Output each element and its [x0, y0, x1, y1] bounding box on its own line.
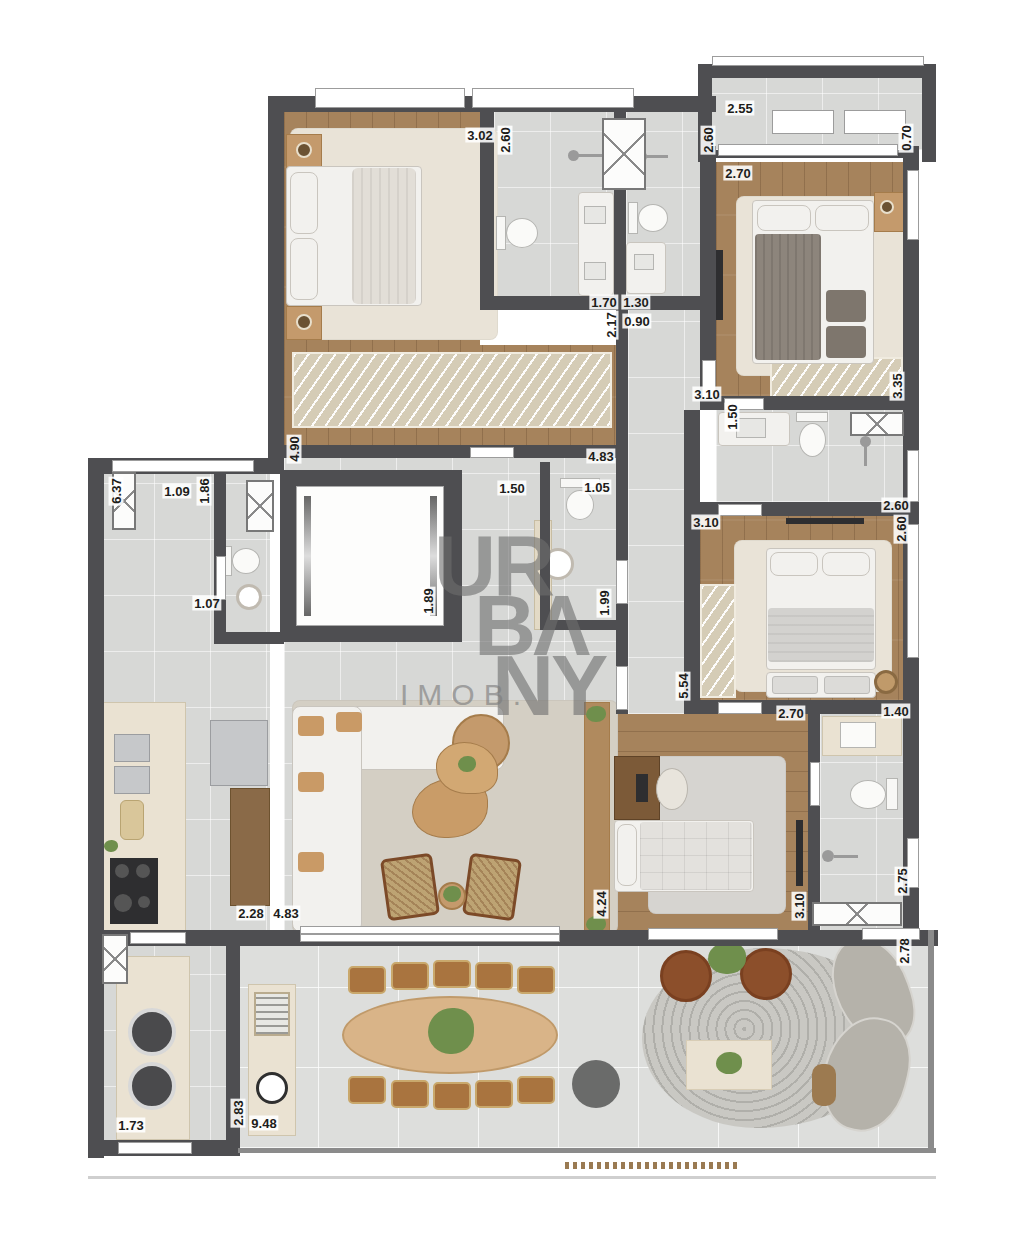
dimension-label: 4.83: [586, 449, 615, 464]
dimension-label: 1.40: [881, 704, 910, 719]
dimension-label: 3.10: [691, 515, 720, 530]
dimension-label: 6.37: [109, 476, 124, 505]
dimension-label: 5.54: [676, 671, 691, 700]
dimension-label: 2.60: [894, 514, 909, 543]
dimension-label: 2.60: [498, 125, 513, 154]
dimension-label: 3.10: [792, 891, 807, 920]
dimension-label: 4.90: [287, 434, 302, 463]
watermark-imob: IMOB.: [400, 678, 530, 712]
dimension-label: 1.89: [421, 586, 436, 615]
dimension-label: 4.24: [594, 889, 609, 918]
dimension-label: 2.55: [725, 101, 754, 116]
dimension-label: 1.05: [582, 480, 611, 495]
dimension-label: 2.60: [881, 498, 910, 513]
dimension-label: 1.86: [197, 476, 212, 505]
dimension-label: 1.99: [597, 588, 612, 617]
dimension-label: 1.50: [497, 481, 526, 496]
dimension-label: 1.50: [725, 402, 740, 431]
floor-plan: UR BΛ NY IMOB. 3.022.602.602.550.702.701…: [0, 0, 1024, 1248]
dimension-label: 2.17: [604, 310, 619, 339]
dimension-label: 2.75: [895, 866, 910, 895]
dimension-label: 1.30: [621, 295, 650, 310]
dimension-label: 3.02: [465, 128, 494, 143]
dimension-label: 4.83: [271, 906, 300, 921]
dimension-label: 3.35: [890, 371, 905, 400]
dimension-label: 2.28: [236, 906, 265, 921]
dimension-label: 2.83: [231, 1098, 246, 1127]
dimension-label: 1.70: [589, 295, 618, 310]
dimension-label: 2.78: [897, 936, 912, 965]
dimension-label: 9.48: [249, 1116, 278, 1131]
dimension-label: 1.07: [192, 596, 221, 611]
dimension-label: 2.70: [776, 706, 805, 721]
dimension-label: 0.70: [899, 123, 914, 152]
dimension-label: 2.60: [701, 125, 716, 154]
dimension-label: 2.70: [723, 166, 752, 181]
dimension-label: 1.73: [116, 1118, 145, 1133]
dimension-label: 3.10: [692, 387, 721, 402]
dimension-label: 1.09: [162, 484, 191, 499]
dimension-label: 0.90: [622, 314, 651, 329]
